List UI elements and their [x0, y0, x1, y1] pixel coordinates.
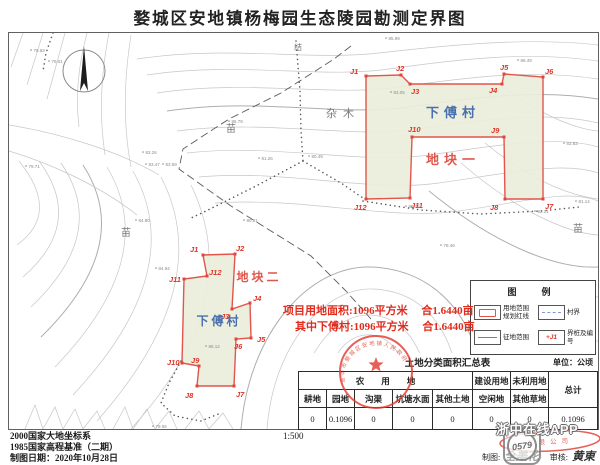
vertex-label: J5: [500, 63, 509, 72]
area-label: 杂木: [326, 107, 360, 120]
spot-height-dot: [205, 345, 207, 347]
project-area-note: 项目用地面积:1096平方米 合1.6440亩: [283, 302, 474, 318]
vertex-label: J9: [491, 126, 500, 135]
spot-height-value: 85.12: [209, 344, 221, 349]
vertex-marker: [365, 75, 368, 78]
spot-height-value: 84.94: [159, 266, 171, 271]
vertex-marker: [504, 198, 507, 201]
spot-height-value: 83.05: [394, 90, 406, 95]
area-label: 地块一: [426, 152, 480, 167]
spot-height-value: 86.49: [521, 58, 533, 63]
vertex-label: J8: [490, 203, 499, 212]
vertex-label: J10: [408, 125, 421, 134]
land-use-extent-symbol: [474, 305, 501, 320]
vertex-label: J11: [169, 275, 181, 284]
reviewer-label: 审核:: [550, 453, 568, 462]
table-cell: 0: [355, 408, 393, 430]
spot-height-dot: [30, 49, 32, 51]
spot-height-dot: [258, 157, 260, 159]
legend-box: 图 例 用地范围规划红线 村界 征地范围 +J1 界桩及编号: [470, 280, 596, 355]
vertex-label: J9: [191, 356, 200, 365]
spot-height-dot: [48, 60, 50, 62]
vertex-label: J2: [396, 64, 405, 73]
red-line-icon: [478, 337, 497, 338]
spot-height-value: 79.06: [156, 424, 168, 429]
acquisition-extent-label: 征地范围: [503, 334, 537, 342]
vertex-label: J12: [354, 203, 367, 212]
map-date: 制图日期：2020年10月28日: [10, 451, 118, 464]
spot-height-value: 79.01: [52, 59, 64, 64]
vertex-marker: [233, 385, 236, 388]
spot-height-value: 79.71: [29, 164, 41, 169]
spot-height-value: 78.46: [444, 243, 456, 248]
boundary-marker-label: 界桩及编号: [567, 330, 597, 345]
spot-height-dot: [145, 163, 147, 165]
vertex-marker: [503, 136, 506, 139]
vertex-label: J6: [545, 67, 554, 76]
vertex-label: J3: [411, 87, 420, 96]
vertex-marker: [409, 197, 412, 200]
vertex-marker: [235, 338, 238, 341]
plot-地块一: J1J2J3J4J5J6J7J8J9J10J11J12: [350, 63, 554, 212]
legend-title: 图 例: [471, 285, 595, 298]
table-cell: 农 用 地: [299, 372, 473, 390]
spot-height-dot: [135, 219, 137, 221]
vertex-label: J6: [234, 342, 243, 351]
spot-height-dot: [405, 205, 407, 207]
area-label: 地块二: [236, 269, 281, 284]
table-cell: 耕地: [299, 390, 327, 408]
spot-height-dot: [517, 59, 519, 61]
area-label: 苗: [573, 223, 583, 235]
table-cell: 0: [393, 408, 433, 430]
table-cell: 0: [299, 408, 327, 430]
reviewer-signature: 黄東: [572, 451, 595, 463]
spot-height-dot: [390, 91, 392, 93]
spot-height-dot: [25, 165, 27, 167]
village-boundary-symbol: [538, 305, 565, 320]
vertex-marker: [503, 73, 506, 76]
area-label: 下傅村: [426, 105, 480, 120]
vertex-label: J2: [236, 244, 245, 253]
vertex-marker: [542, 198, 545, 201]
area-label: 苗: [226, 123, 236, 135]
vertex-marker: [250, 337, 253, 340]
vertex-marker: [409, 83, 412, 86]
vertex-marker: [249, 302, 252, 305]
spot-height-value: 80.91: [247, 218, 259, 223]
vertex-label: J8: [185, 391, 194, 400]
vertex-label: J4: [253, 294, 262, 303]
spot-height-value: 85.76: [409, 204, 421, 209]
spot-height-value: 78.63: [34, 48, 46, 53]
table-cell: 园地: [327, 390, 355, 408]
table-cell: 坑塘水面: [393, 390, 433, 408]
vertex-marker: [365, 198, 368, 201]
drafter-label: 制图:: [482, 453, 500, 462]
spot-height-dot: [152, 425, 154, 427]
spot-height-value: 81.14: [579, 199, 591, 204]
table-cell: 其他草地: [511, 390, 549, 408]
spot-height-dot: [575, 200, 577, 202]
spot-height-dot: [162, 163, 164, 165]
spot-height-value: 84.80: [139, 218, 151, 223]
vertex-label: J7: [236, 390, 245, 399]
spot-height-value: 80.49: [312, 154, 324, 159]
boundary-marker-symbol: +J1: [538, 330, 565, 345]
spot-height-dot: [563, 142, 565, 144]
spot-height-dot: [228, 120, 230, 122]
land-summary-section: 土地分类面积汇总表 单位：公顷 农 用 地建设用地未利用地总计耕地园地沟渠坑塘水…: [298, 353, 597, 429]
land-table-unit: 单位：公顷: [553, 357, 593, 368]
vertex-marker: [501, 83, 504, 86]
vertex-marker: [231, 308, 234, 311]
spot-height-dot: [243, 219, 245, 221]
vertex-label: J10: [167, 358, 180, 367]
spot-height-dot: [440, 244, 442, 246]
vertex-label: J5: [257, 335, 266, 344]
spot-height-value: 83.83: [567, 141, 579, 146]
table-cell: 空闲地: [473, 390, 511, 408]
table-cell: 建设用地: [473, 372, 511, 390]
area-label: 结: [294, 42, 302, 52]
table-cell: 0.1096: [327, 408, 355, 430]
vertex-label: J12: [209, 268, 222, 277]
village-boundary-label: 村界: [567, 309, 597, 317]
vertex-marker: [202, 254, 205, 257]
acquisition-extent-symbol: [474, 330, 501, 345]
spot-height-value: 83.59: [166, 162, 178, 167]
spot-height-dot: [308, 155, 310, 157]
area-label: 下傅村: [196, 313, 241, 328]
watermark-text: 浙中在线APP: [496, 419, 578, 438]
table-cell: 0: [433, 408, 473, 430]
map-scale: 1:500: [283, 431, 304, 441]
village-area-note: 其中下傅村:1096平方米 合1.6440亩: [295, 318, 475, 334]
table-cell: 沟渠: [355, 390, 393, 408]
spot-height-value: 83.47: [149, 162, 161, 167]
spot-height-value: 82.21: [538, 209, 550, 214]
area-label: 苗: [121, 227, 131, 239]
page-title: 婺城区安地镇杨梅园生态陵园勘测定界图: [0, 5, 600, 29]
vertex-label: J1: [350, 67, 358, 76]
vertex-marker: [183, 278, 186, 281]
spot-height-value: 85.99: [389, 36, 401, 41]
spot-height-value: 81.26: [262, 156, 274, 161]
dashed-line-icon: [542, 312, 561, 313]
spot-height-dot: [534, 210, 536, 212]
vertex-marker: [196, 385, 199, 388]
spot-height-dot: [155, 267, 157, 269]
land-table-title: 土地分类面积汇总表 单位：公顷: [298, 353, 597, 371]
vertex-label: J4: [489, 86, 498, 95]
spot-height-dot: [385, 37, 387, 39]
spot-height-dot: [142, 151, 144, 153]
north-arrow: [63, 46, 105, 92]
vertex-marker: [181, 362, 184, 365]
table-cell: 未利用地: [511, 372, 549, 390]
boundary-marker-icon: +J1: [546, 334, 557, 341]
table-cell: 其他土地: [433, 390, 473, 408]
vertex-label: J1: [190, 245, 198, 254]
spot-height-value: 83.26: [146, 150, 158, 155]
vertex-marker: [400, 74, 403, 77]
table-cell: 总计: [549, 372, 598, 408]
land-use-extent-label: 用地范围规划红线: [503, 305, 537, 320]
vertex-marker: [411, 136, 414, 139]
red-rect-icon: [479, 309, 496, 317]
